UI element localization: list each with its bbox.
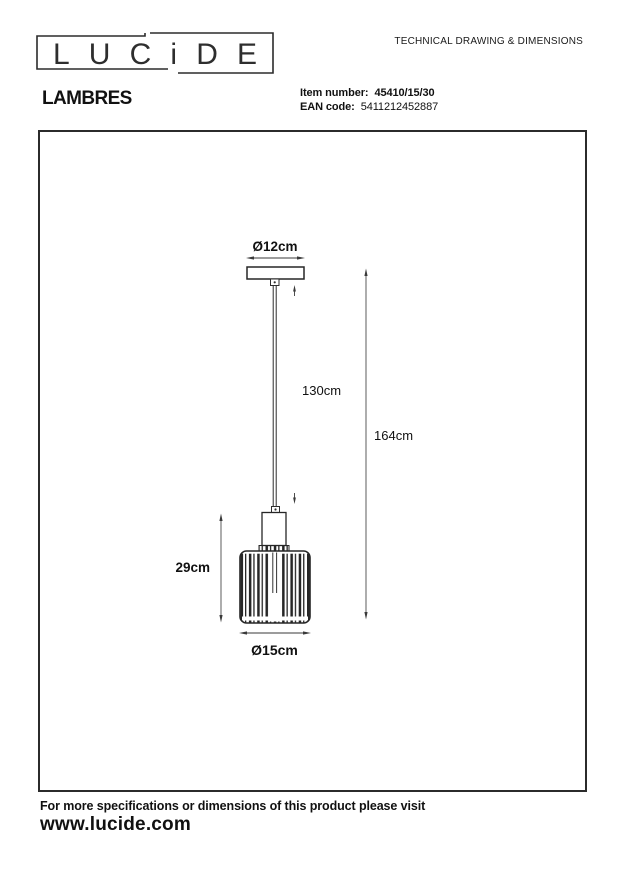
lucide-logo: LUCiDE (36, 30, 276, 78)
cord-length-label: 130cm (302, 383, 341, 398)
total-height-label: 164cm (374, 428, 413, 443)
technical-drawing-frame: Ø12cm 130cm (38, 130, 587, 792)
ean-row: EAN code: 5411212452887 (300, 101, 438, 115)
pendant-lamp-drawing: Ø12cm 130cm (40, 132, 585, 790)
shade-diameter-dimension: Ø15cm (239, 631, 311, 658)
ceiling-canopy (247, 267, 304, 286)
spec-sheet-page: LUCiDE TECHNICAL DRAWING & DIMENSIONS LA… (0, 0, 620, 877)
shade-diameter-label: Ø15cm (251, 642, 298, 658)
cord-length-dimension: 130cm (293, 285, 341, 504)
document-title: TECHNICAL DRAWING & DIMENSIONS (394, 36, 583, 47)
product-codes: Item number: 45410/15/30 EAN code: 54112… (300, 87, 438, 114)
shade-height-dimension: 29cm (175, 514, 222, 623)
ean-label: EAN code: (300, 101, 355, 113)
item-number-row: Item number: 45410/15/30 (300, 87, 438, 101)
canopy-diameter-dimension: Ø12cm (246, 239, 305, 260)
shade-height-label: 29cm (175, 560, 210, 575)
socket-holder (259, 507, 289, 552)
footer-note: For more specifications or dimensions of… (40, 799, 425, 813)
total-height-dimension: 164cm (364, 269, 413, 620)
canopy-diameter-label: Ø12cm (252, 239, 297, 254)
item-number-label: Item number: (300, 87, 368, 99)
ean-value: 5411212452887 (361, 101, 438, 113)
shade-center-opening (270, 553, 281, 622)
suspension-cord (273, 286, 276, 508)
website-url: www.lucide.com (40, 814, 191, 836)
item-number-value: 45410/15/30 (374, 87, 434, 99)
lamp-shade (240, 551, 310, 623)
logo-wordmark: LUCiDE (53, 38, 257, 71)
product-name: LAMBRES (42, 88, 132, 110)
